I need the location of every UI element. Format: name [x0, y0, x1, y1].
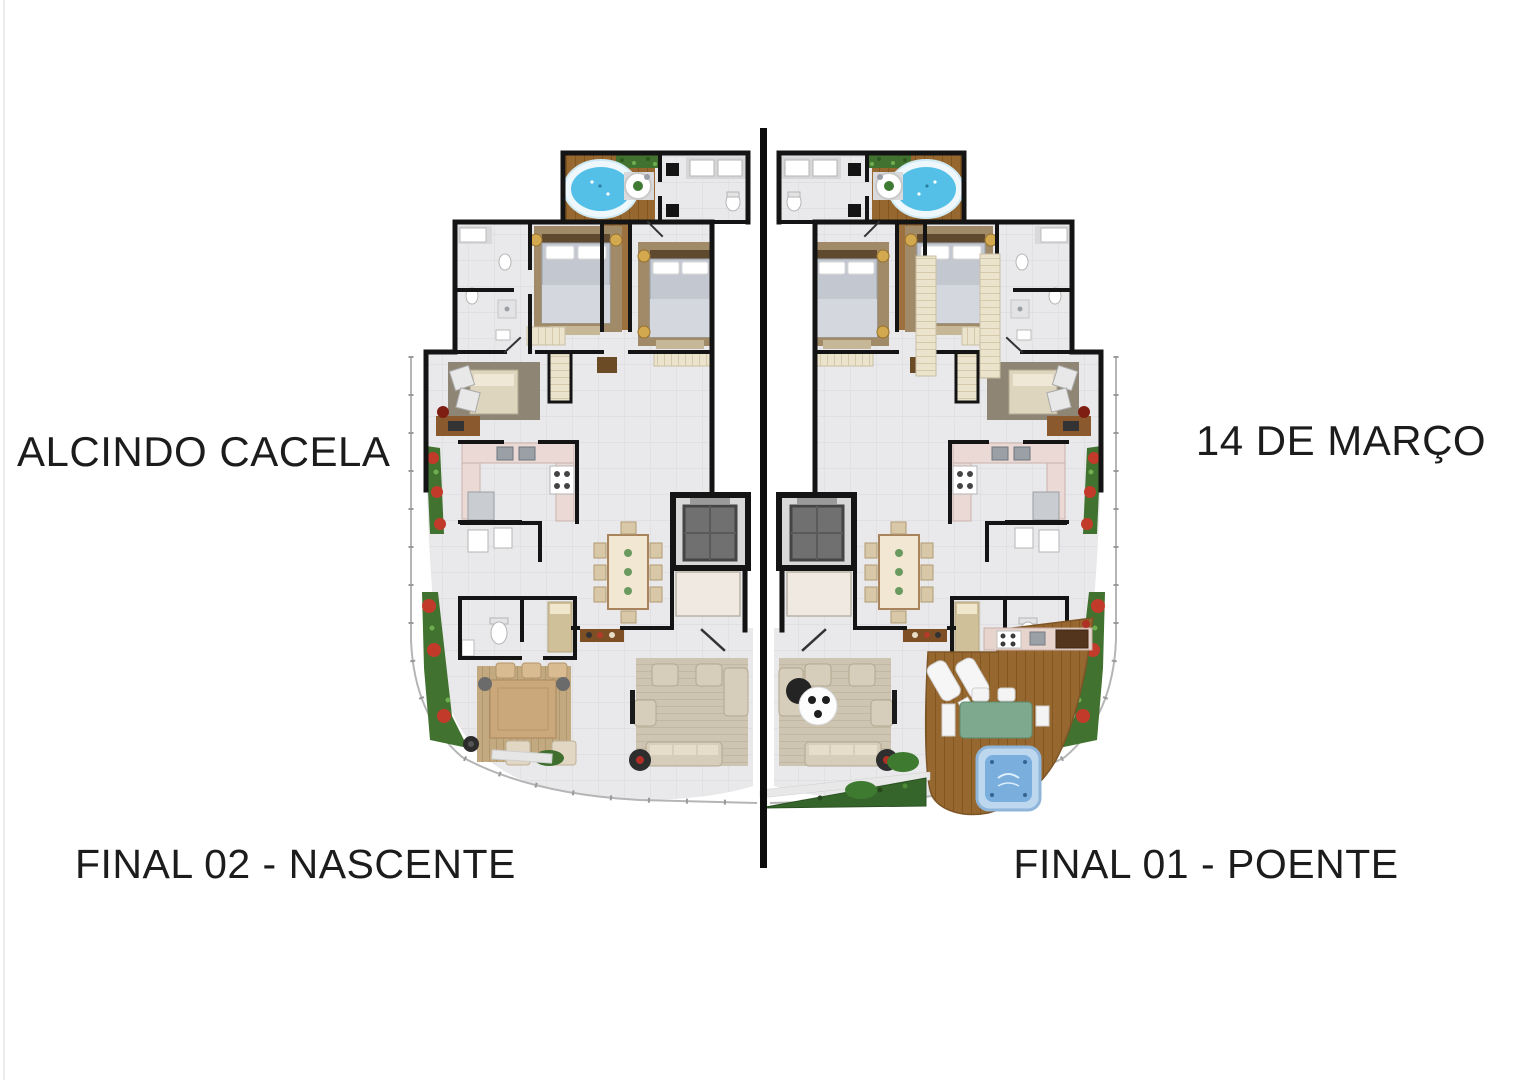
chair — [456, 388, 480, 412]
stove — [997, 631, 1021, 648]
stove — [550, 466, 574, 494]
sideboard — [580, 629, 624, 642]
chair — [594, 543, 606, 558]
bench — [1036, 706, 1049, 726]
bench — [942, 704, 955, 736]
counter — [462, 443, 574, 463]
elevator-lobby — [676, 572, 740, 616]
chair — [650, 565, 662, 580]
bed-bench — [656, 340, 704, 349]
sink — [462, 640, 474, 656]
bedside-lamp — [638, 250, 650, 262]
planter-pot — [478, 677, 492, 691]
sink — [497, 447, 513, 460]
elevator — [673, 495, 748, 568]
sink — [1030, 632, 1045, 645]
bedside-lamp — [638, 326, 650, 338]
sink — [519, 447, 535, 460]
chair — [972, 688, 989, 701]
red-decor — [1082, 620, 1090, 628]
bedroom-1 — [530, 226, 622, 335]
hot-tub — [977, 747, 1040, 810]
toilet — [499, 254, 511, 270]
bar-cabinet — [1056, 630, 1088, 648]
right-unit-plan — [760, 153, 1116, 814]
dresser — [597, 357, 617, 373]
terrace-table — [490, 680, 556, 738]
left-unit-plan — [411, 153, 757, 803]
washer — [494, 528, 512, 548]
chair — [594, 587, 606, 602]
shrub — [845, 781, 877, 799]
headboard — [542, 234, 610, 243]
tv-panel — [630, 690, 635, 724]
red-decor — [437, 406, 449, 418]
laptop — [448, 421, 464, 431]
floor-plan-drawing — [0, 0, 1527, 1080]
chair — [594, 565, 606, 580]
headboard — [650, 250, 710, 259]
chair — [522, 663, 541, 678]
page-edge-line — [3, 0, 5, 1080]
chair — [621, 522, 636, 534]
hall-closet — [549, 354, 571, 402]
armchair — [652, 664, 678, 686]
fridge — [468, 492, 494, 520]
bedside-lamp — [610, 234, 622, 246]
shrub — [887, 752, 919, 772]
chaise — [724, 668, 748, 716]
living-set — [629, 658, 748, 771]
terrace-dining-set — [463, 663, 576, 766]
washer — [468, 530, 488, 552]
toilet — [491, 622, 507, 644]
planter-pot — [556, 677, 570, 691]
unit-shell — [411, 153, 757, 803]
armchair — [634, 700, 656, 726]
chair — [998, 688, 1015, 701]
chair — [650, 587, 662, 602]
floor-plan-page: ALCINDO CACELA 14 DE MARÇO FINAL 02 - NA… — [0, 0, 1527, 1080]
bedroom-2 — [638, 242, 710, 349]
chair — [650, 543, 662, 558]
green-table — [960, 702, 1032, 738]
center-divider-line — [760, 128, 767, 868]
chair — [496, 663, 515, 678]
chair — [621, 611, 636, 623]
chair — [548, 663, 567, 678]
armchair — [696, 664, 722, 686]
